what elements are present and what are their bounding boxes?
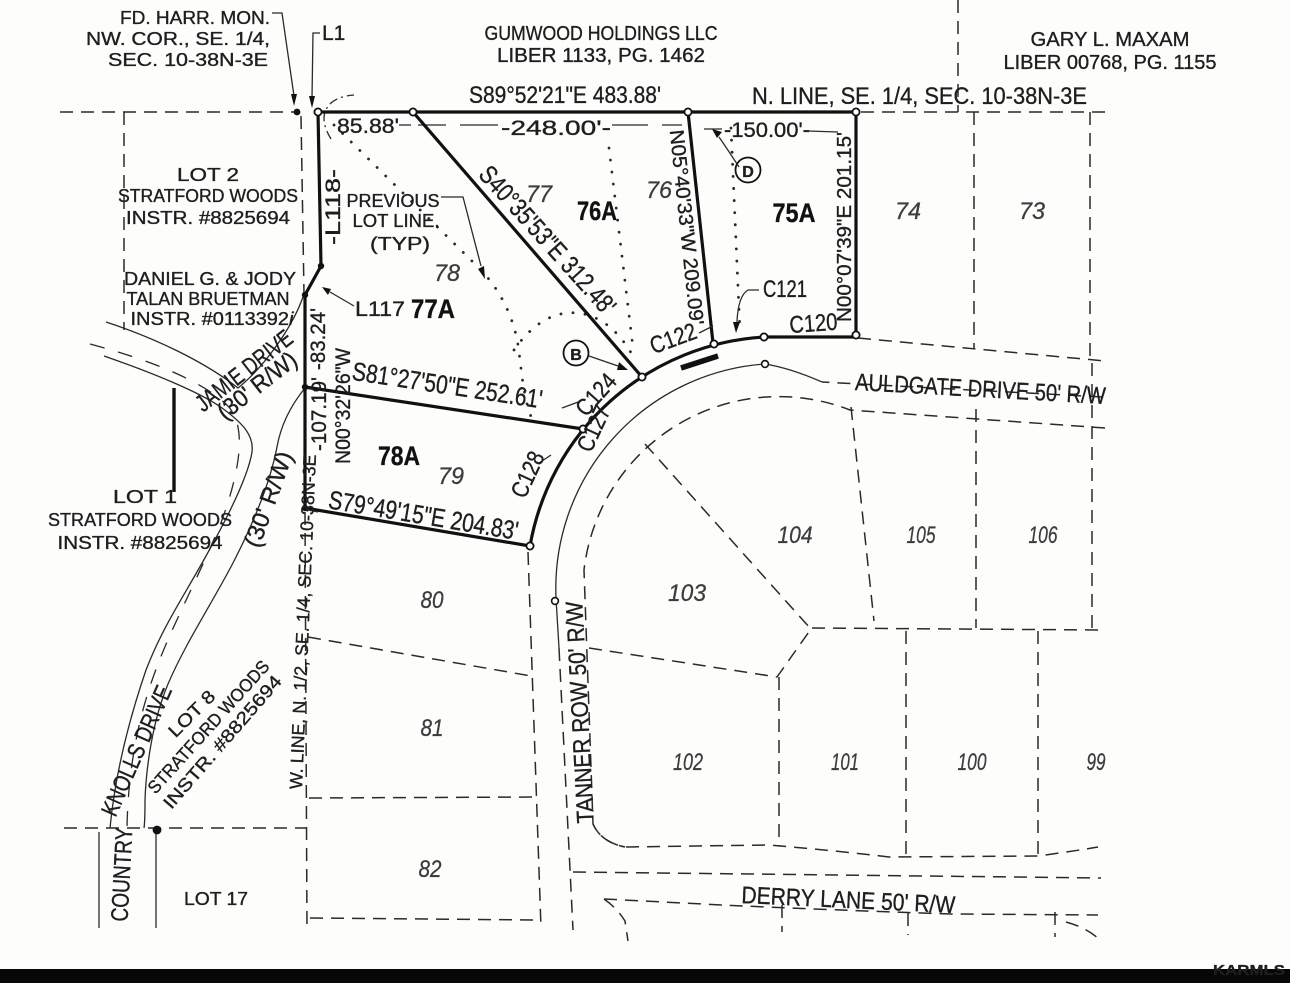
svg-text:100: 100: [958, 749, 987, 776]
svg-text:N. LINE, SE. 1/4, SEC. 10-38N-: N. LINE, SE. 1/4, SEC. 10-38N-3E: [752, 83, 1087, 110]
svg-text:KARMLS: KARMLS: [1213, 962, 1285, 979]
svg-text:104: 104: [778, 522, 813, 549]
svg-text:C121: C121: [763, 276, 807, 303]
svg-text:DANIEL G. & JODY: DANIEL G. & JODY: [124, 269, 296, 289]
svg-text:INSTR. #8825694: INSTR. #8825694: [126, 208, 290, 228]
svg-text:L1: L1: [322, 22, 345, 45]
svg-text:80: 80: [421, 587, 445, 614]
svg-text:-107.19': -107.19': [308, 377, 331, 451]
svg-text:STRATFORD WOODS: STRATFORD WOODS: [48, 510, 232, 530]
svg-text:INSTR. #0113392i: INSTR. #0113392i: [131, 309, 295, 329]
svg-text:LOT 17: LOT 17: [184, 889, 248, 909]
svg-text:PREVIOUS: PREVIOUS: [347, 191, 440, 211]
svg-text:82: 82: [419, 856, 442, 883]
svg-text:79: 79: [438, 463, 464, 490]
svg-text:LOT LINE.: LOT LINE.: [353, 211, 440, 231]
svg-text:GUMWOOD HOLDINGS LLC: GUMWOOD HOLDINGS LLC: [485, 23, 718, 45]
svg-text:INSTR. #8825694: INSTR. #8825694: [58, 533, 223, 553]
svg-text:LIBER 1133, PG. 1462: LIBER 1133, PG. 1462: [497, 45, 705, 67]
svg-text:99: 99: [1087, 749, 1106, 776]
svg-text:-150.00'-: -150.00'-: [724, 119, 810, 142]
svg-text:N00°32'26"W: N00°32'26"W: [332, 348, 355, 464]
svg-text:STRATFORD WOODS: STRATFORD WOODS: [118, 186, 298, 206]
svg-text:78: 78: [434, 260, 461, 287]
svg-text:106: 106: [1029, 522, 1058, 549]
svg-text:(TYP): (TYP): [370, 234, 430, 254]
svg-text:N00°07'39"E 201.15': N00°07'39"E 201.15': [834, 132, 856, 322]
svg-text:NW. COR., SE. 1/4,: NW. COR., SE. 1/4,: [86, 29, 270, 49]
svg-text:105: 105: [907, 522, 936, 549]
svg-text:COUNTRY: COUNTRY: [107, 827, 139, 922]
svg-text:85.88': 85.88': [337, 115, 399, 138]
svg-text:76: 76: [646, 177, 673, 204]
svg-text:-248.00'-: -248.00'-: [501, 117, 611, 140]
svg-text:103: 103: [668, 580, 707, 607]
svg-text:102: 102: [673, 749, 703, 776]
svg-text:B: B: [570, 347, 582, 364]
svg-text:78A: 78A: [378, 441, 420, 471]
svg-text:LOT 2: LOT 2: [177, 165, 239, 185]
svg-text:-83.24': -83.24': [307, 308, 330, 370]
svg-text:74: 74: [895, 198, 921, 225]
svg-text:77A: 77A: [411, 294, 455, 324]
svg-text:81: 81: [421, 715, 444, 742]
svg-text:76A: 76A: [577, 196, 617, 226]
svg-text:SEC. 10-38N-3E: SEC. 10-38N-3E: [108, 50, 268, 70]
svg-text:73: 73: [1019, 198, 1046, 225]
svg-text:LOT 1: LOT 1: [113, 487, 177, 507]
svg-text:GARY L. MAXAM: GARY L. MAXAM: [1031, 29, 1190, 51]
svg-text:75A: 75A: [773, 198, 816, 228]
svg-text:101: 101: [831, 749, 859, 776]
svg-text:-L118-: -L118-: [322, 169, 345, 245]
svg-text:S89°52'21"E 483.88': S89°52'21"E 483.88': [469, 82, 661, 109]
svg-text:D: D: [742, 164, 754, 181]
svg-text:LIBER 00768, PG. 1155: LIBER 00768, PG. 1155: [1004, 52, 1217, 74]
svg-text:FD. HARR. MON.: FD. HARR. MON.: [120, 8, 270, 28]
svg-text:L117: L117: [355, 298, 405, 321]
svg-text:TALAN BRUETMAN: TALAN BRUETMAN: [127, 289, 290, 309]
svg-text:C120: C120: [789, 309, 839, 339]
